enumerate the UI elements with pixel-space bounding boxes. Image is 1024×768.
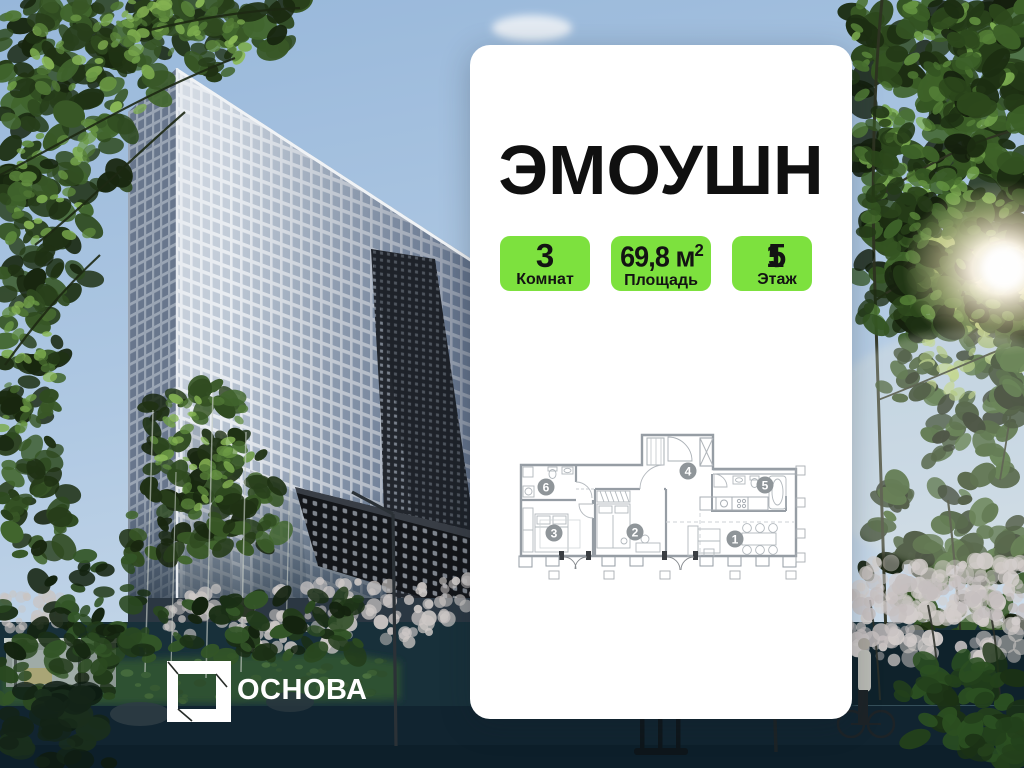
svg-text:2: 2: [632, 525, 639, 539]
svg-text:6: 6: [543, 480, 550, 494]
svg-text:1: 1: [732, 532, 739, 546]
svg-text:3: 3: [551, 526, 558, 540]
svg-text:5: 5: [762, 478, 769, 492]
svg-text:4: 4: [685, 464, 692, 478]
